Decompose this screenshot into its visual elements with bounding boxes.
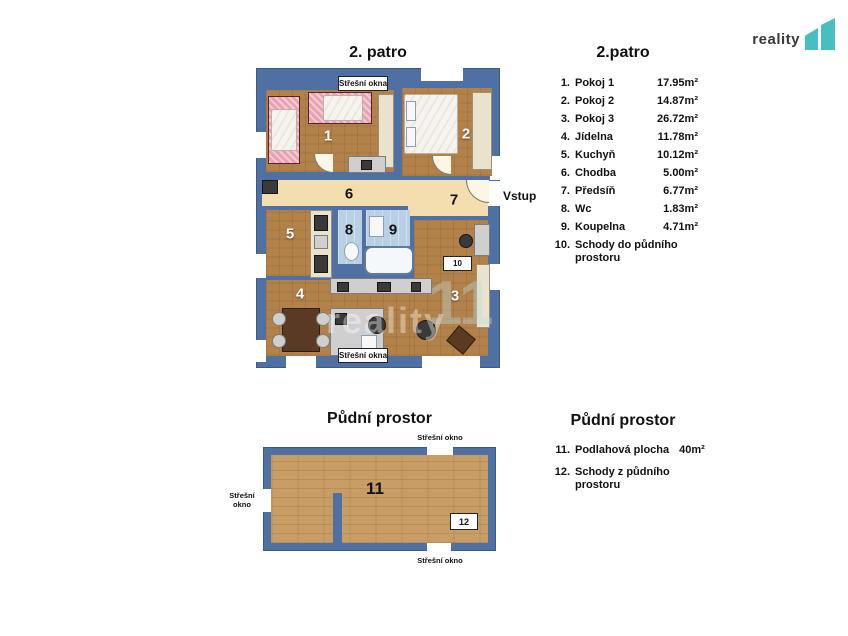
wall-stub: [333, 493, 342, 543]
bathtub-icon: [364, 246, 414, 275]
window-gap: [263, 489, 271, 512]
room-number-1: 1: [324, 128, 332, 145]
room-number-9: 9: [389, 222, 397, 239]
legend-row: 8. Wc 1.83m²: [548, 203, 698, 216]
legend-row: 10. Schody do půdního prostoru: [548, 239, 698, 265]
chair-icon: [272, 312, 286, 326]
chair-icon: [459, 234, 473, 248]
window-gap: [421, 68, 463, 81]
desk-icon: [348, 156, 386, 173]
logo-text: reality: [752, 32, 800, 50]
window-gap: [256, 340, 266, 362]
window-gap: [256, 254, 266, 278]
desk-icon: [330, 278, 432, 294]
sink-icon: [369, 216, 384, 237]
room-number-5: 5: [286, 226, 294, 243]
window-gap: [422, 355, 480, 368]
desk-icon: [474, 224, 490, 256]
upper-floor-plan: 1 2 6 7 5 8 9: [256, 68, 500, 368]
attic-legend: 11. Podlahová plocha 40m² 12. Schody z p…: [548, 444, 718, 497]
upper-legend-title: 2.patro: [548, 44, 698, 62]
entrance-opening: [488, 181, 500, 206]
legend-row: 1. Pokoj 1 17.95m²: [548, 77, 698, 90]
legend-row: 4. Jídelna 11.78m²: [548, 131, 698, 144]
window-gap: [256, 132, 266, 158]
attic-roof-window-top-label: Střešní okno: [400, 434, 480, 443]
window-gap: [427, 543, 451, 551]
room-number-4: 4: [296, 286, 304, 303]
room-number-8: 8: [345, 222, 353, 239]
legend-row: 2. Pokoj 2 14.87m²: [548, 95, 698, 108]
room-5-floor: [266, 210, 316, 276]
floorplan-page: reality 2. patro 2.patro 1: [0, 0, 848, 636]
watermark-numeral: 11: [428, 268, 494, 339]
legend-row: 5. Kuchyň 10.12m²: [548, 149, 698, 162]
legend-row: 6. Chodba 5.00m²: [548, 167, 698, 180]
room-number-11: 11: [366, 479, 384, 499]
attic-roof-window-bottom-label: Střešní okno: [400, 557, 480, 566]
room-number-2: 2: [462, 126, 470, 143]
attic-roof-window-left-label: Střešní okno: [224, 492, 260, 509]
toilet-icon: [344, 242, 359, 261]
room-6-floor: [262, 180, 408, 206]
roof-windows-bottom-label: Střešní okna: [338, 348, 388, 363]
logo-11-icon: [804, 18, 838, 50]
bed-icon: [308, 92, 372, 124]
entrance-label: Vstup: [503, 189, 536, 203]
reality11-logo: reality: [752, 18, 838, 50]
chair-icon: [272, 334, 286, 348]
roof-windows-top-label: Střešní okna: [338, 76, 388, 91]
upper-plan-title: 2. patro: [256, 44, 500, 62]
kitchen-counter-icon: [310, 210, 332, 278]
window-gap: [427, 447, 453, 455]
cabinet-icon: [262, 180, 278, 194]
room-number-6: 6: [345, 186, 353, 203]
window-gap: [286, 355, 316, 368]
legend-row: 7. Předsíň 6.77m²: [548, 185, 698, 198]
bed-icon: [268, 96, 300, 164]
wardrobe-icon: [472, 92, 492, 170]
legend-row: 9. Koupelna 4.71m²: [548, 221, 698, 234]
attic-floor-plan: 11 12: [263, 447, 496, 551]
double-bed-icon: [404, 94, 458, 154]
legend-row: 12. Schody z půdního prostoru: [548, 466, 718, 492]
stairs-box: 12: [450, 513, 478, 530]
legend-row: 3. Pokoj 3 26.72m²: [548, 113, 698, 126]
legend-row: 11. Podlahová plocha 40m²: [548, 444, 718, 457]
attic-legend-title: Půdní prostor: [548, 412, 698, 430]
dining-table-icon: [282, 308, 320, 352]
attic-plan-title: Půdní prostor: [263, 410, 496, 428]
upper-legend: 1. Pokoj 1 17.95m² 2. Pokoj 2 14.87m² 3.…: [548, 77, 698, 270]
room-number-7: 7: [450, 192, 458, 209]
